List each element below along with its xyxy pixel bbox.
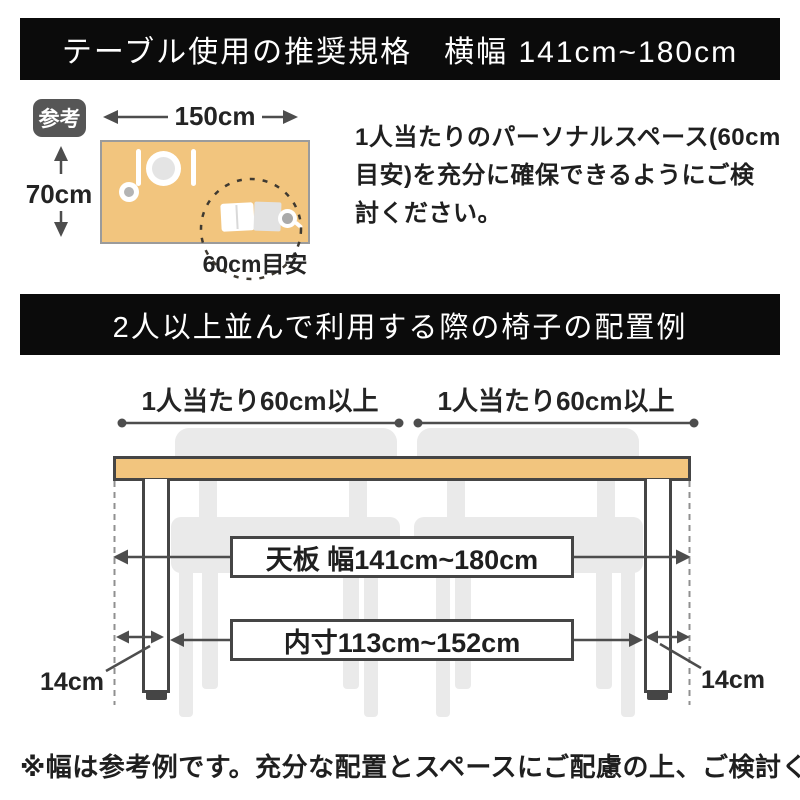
note-line: 1人当たりのパーソナルスペース(60cm [355,119,795,157]
spec-banner: テーブル使用の推奨規格 横幅 141cm~180cm [20,18,780,80]
table-width-label: 150cm [165,101,265,131]
per-person-span-right [414,419,699,428]
inner-width-box: 内寸113cm~152cm [230,619,574,661]
personal-space-note: 1人当たりのパーソナルスペース(60cm 目安)を充分に確保できるようにご検 討… [355,119,795,233]
plate-icon [146,151,181,186]
footer-note: ※幅は参考例です。充分な配置とスペースにご配慮の上、ご検討ください。 [20,747,780,784]
magnifier-icon [278,209,297,228]
tabletop-width-label: 天板 幅141cm~180cm [266,538,538,577]
per-person-label-left: 1人当たり60cm以上 [130,384,390,414]
book-icon [220,202,254,232]
table-foot-left [146,691,167,700]
layout-banner-title: 2人以上並んで利用する際の椅子の配置例 [113,304,688,346]
table-top-view [100,140,310,244]
leg-inset-label-left: 14cm [34,667,110,697]
chair-left-leg [179,571,193,717]
leg-inset-label-right: 14cm [695,665,771,695]
chair-right-leg [596,571,612,689]
book-spine [235,205,238,229]
tabletop-front-view [113,456,691,481]
plate-inner [152,157,175,180]
chair-left-post [349,478,367,519]
page: テーブル使用の推奨規格 横幅 141cm~180cm 参考 150cm 70cm… [0,0,800,800]
chair-left-post [199,478,217,519]
chair-right-post [447,478,465,519]
spec-banner-title: テーブル使用の推奨規格 横幅 141cm~180cm [62,27,738,71]
magnifier-handle [294,221,303,230]
inner-width-label: 内寸113cm~152cm [284,621,520,660]
personal-space-label: 60cm目安 [193,248,317,276]
per-person-span-left [118,419,404,428]
table-depth-label: 70cm [22,179,96,209]
table-leg-right [644,479,672,693]
cup-inner [124,187,134,197]
per-person-label-right: 1人当たり60cm以上 [426,384,686,414]
chair-left-leg [202,571,218,689]
chair-right-post [597,478,615,519]
layout-banner: 2人以上並んで利用する際の椅子の配置例 [20,294,780,355]
reference-badge: 参考 [33,99,86,137]
cup-icon [119,182,139,202]
note-line: 目安)を充分に確保できるようにご検 [355,157,795,195]
table-foot-right [647,691,668,700]
note-line: 討ください。 [355,195,795,233]
tabletop-width-box: 天板 幅141cm~180cm [230,536,574,578]
magnifier-lens [282,213,293,224]
chair-right-leg [621,571,635,717]
knife-icon [191,149,196,186]
table-leg-left [142,479,170,693]
fork-icon [136,149,141,186]
